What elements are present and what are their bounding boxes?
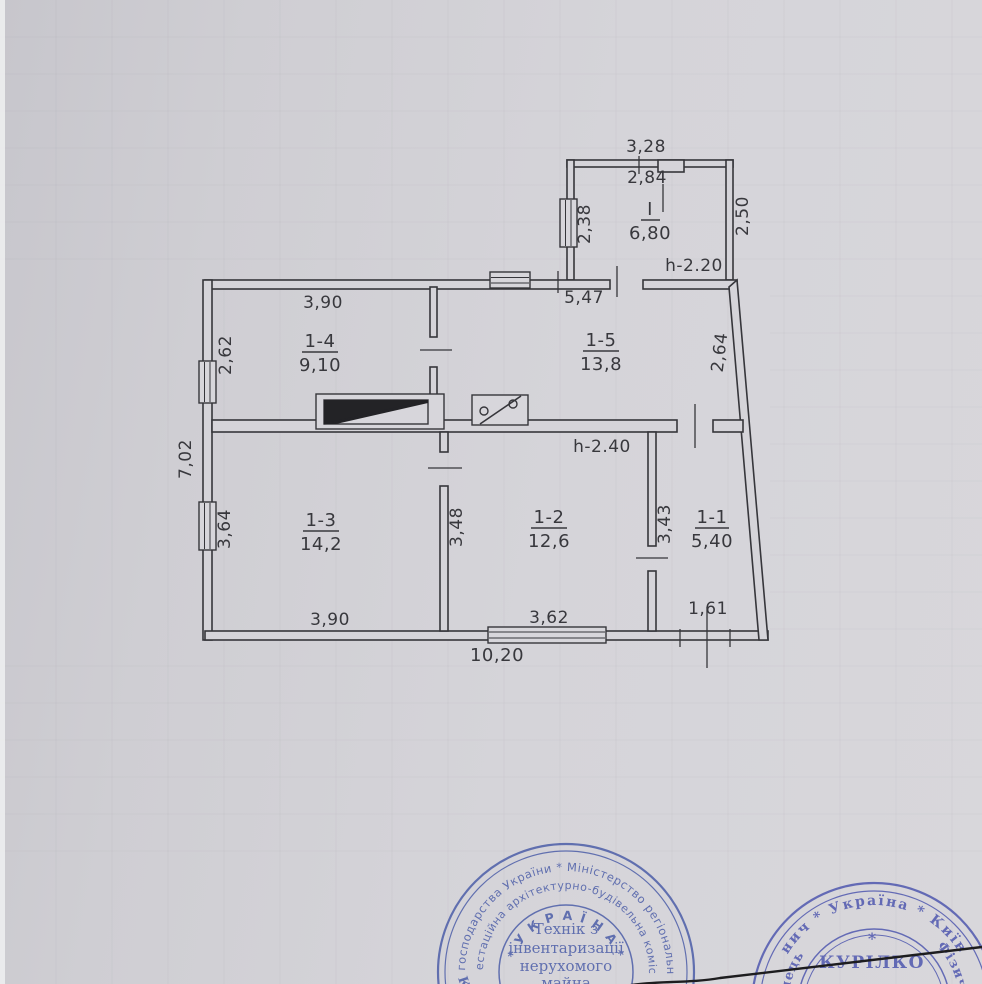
main-building-walls — [203, 280, 768, 640]
window — [199, 502, 216, 550]
room-label-r12: 1-2 — [534, 507, 565, 528]
dim-overall-left: 7,02 — [176, 439, 196, 479]
stamp-right: нич * Україна * Київ мець Фізич * КУРІЛК… — [752, 883, 982, 984]
stamp-left-title-line2: інвентаризації — [508, 939, 624, 957]
window — [488, 627, 606, 643]
plan-labels: 3,28 2,84 I 6,80 2,38 2,50 h-2.20 3,90 1… — [176, 137, 753, 666]
dim-r15-width: 5,47 — [564, 288, 604, 308]
window — [199, 361, 216, 403]
area-r12: 12,6 — [528, 531, 570, 552]
dim-r14-width: 3,90 — [303, 293, 343, 313]
stamp-left-title-line1: Технік з — [534, 920, 598, 938]
area-annex: 6,80 — [629, 223, 671, 244]
grid-showthrough — [0, 0, 982, 984]
stamp-left-ring-fragment: КУ — [454, 975, 475, 984]
room-label-r13: 1-3 — [306, 510, 337, 531]
dim-r14-left: 2,62 — [216, 335, 236, 375]
dim-annex-right: 2,50 — [733, 196, 753, 236]
dim-r15-right: 2,64 — [708, 331, 733, 373]
area-r13: 14,2 — [300, 534, 342, 555]
area-r11: 5,40 — [691, 531, 733, 552]
floor-plan: 3,28 2,84 I 6,80 2,38 2,50 h-2.20 3,90 1… — [176, 137, 768, 668]
stamp-left-title-line4: майна — [541, 974, 591, 984]
dim-annex-left: 2,38 — [575, 204, 595, 244]
interior-walls — [212, 287, 743, 631]
dim-annex-width-inner: 2,84 — [627, 168, 667, 188]
photo-left-edge — [0, 0, 5, 984]
stamp-left-title-line3: нерухомого — [520, 957, 612, 975]
height-note-annex: h-2.20 — [665, 256, 723, 276]
area-r14: 9,10 — [299, 355, 341, 376]
window — [490, 272, 530, 288]
dim-r13-width-bottom: 3,90 — [310, 610, 350, 630]
room-label-r11: 1-1 — [697, 507, 728, 528]
room-label-r15: 1-5 — [586, 330, 617, 351]
height-note-main: h-2.40 — [573, 437, 631, 457]
dim-overall-bottom: 10,20 — [470, 645, 524, 666]
room-label-annex: I — [647, 199, 653, 220]
room-label-r14: 1-4 — [305, 331, 336, 352]
dim-annex-width-outer: 3,28 — [626, 137, 666, 157]
dim-r11-left: 3,43 — [655, 504, 675, 544]
stamp-left-ring-outer-text: ого господарства України * Міністерство … — [0, 0, 678, 975]
dim-r12-left: 3,48 — [447, 507, 467, 547]
dim-r13-left: 3,64 — [215, 509, 235, 549]
dim-r12-width-bottom: 3,62 — [529, 608, 569, 628]
svg-text:ого господарства України * М: ого господарства України * Міністерство … — [0, 0, 678, 975]
area-r15: 13,8 — [580, 354, 622, 375]
gas-stove-symbol — [472, 395, 528, 425]
stamp-right-star: * — [868, 929, 877, 948]
scanned-floor-plan-photo: 3,28 2,84 I 6,80 2,38 2,50 h-2.20 3,90 1… — [0, 0, 982, 984]
stove-symbol — [316, 394, 444, 429]
dim-r11-width-bottom: 1,61 — [688, 599, 728, 619]
